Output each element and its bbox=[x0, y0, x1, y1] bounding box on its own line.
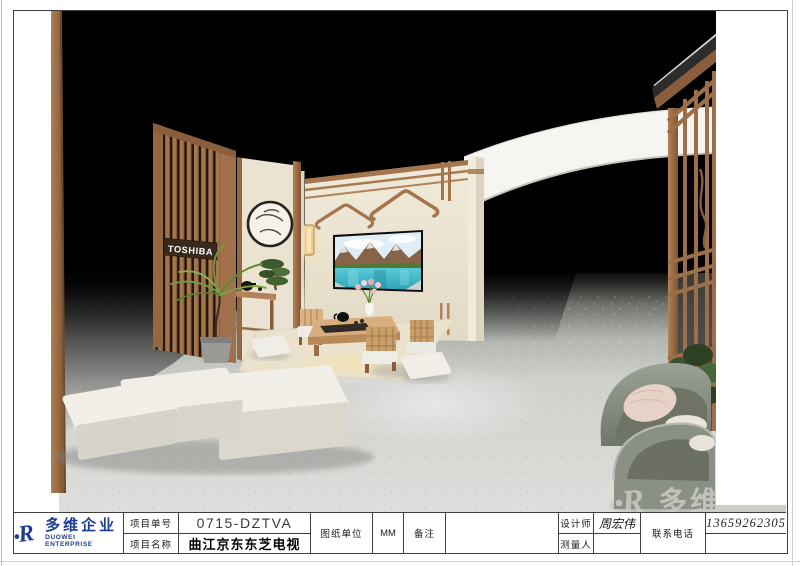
remark-label: 备注 bbox=[403, 513, 445, 553]
company-logo: R 多维企业 DUOWEI ENTERPRISE bbox=[14, 513, 123, 553]
title-block: R 多维企业 DUOWEI ENTERPRISE 项目单号 0715-DZTVA… bbox=[14, 512, 786, 552]
project-name-label: 项目名称 bbox=[123, 533, 178, 553]
right-margin-strip bbox=[716, 11, 786, 505]
designer-label: 设计师 bbox=[558, 513, 593, 533]
phone-value-row2 bbox=[705, 533, 786, 553]
company-name-en: DUOWEI ENTERPRISE bbox=[45, 535, 123, 548]
slat-screen: TOSHIBA bbox=[153, 123, 236, 363]
watermark-monogram: R bbox=[618, 482, 646, 512]
phone-value: 13659262305 bbox=[705, 513, 786, 533]
page-edge-line bbox=[0, 561, 800, 562]
sheet-frame: TOSHIBA bbox=[13, 10, 788, 554]
surveyor-value bbox=[593, 533, 640, 553]
floor-cushion-right bbox=[402, 355, 450, 383]
surveyor-label: 测量人 bbox=[558, 533, 593, 553]
unit-value: MM bbox=[372, 513, 403, 553]
round-plate-decor bbox=[248, 202, 292, 246]
logo-monogram-icon: R bbox=[14, 518, 41, 548]
bench-cushion bbox=[66, 382, 175, 457]
left-wall bbox=[14, 11, 66, 512]
drawing-sheet: TOSHIBA bbox=[0, 0, 800, 566]
booth-render: TOSHIBA bbox=[14, 11, 786, 512]
unit-label: 图纸单位 bbox=[310, 513, 372, 553]
wall-corner-pillar bbox=[468, 156, 484, 341]
phone-label: 联系电话 bbox=[640, 513, 705, 553]
remark-value bbox=[445, 513, 558, 553]
company-name-cn: 多维企业 bbox=[45, 518, 123, 533]
floor-sliver bbox=[716, 505, 786, 512]
project-no-value: 0715-DZTVA bbox=[178, 513, 310, 533]
designer-value: 周宏伟 bbox=[593, 513, 640, 533]
project-no-label: 项目单号 bbox=[123, 513, 178, 533]
floor-cushion-left bbox=[250, 338, 290, 360]
svg-text:R: R bbox=[16, 520, 36, 548]
page-edge-line bbox=[792, 0, 793, 566]
project-name-value: 曲江京东东芝电视 bbox=[178, 533, 310, 553]
page-edge-line bbox=[1, 0, 2, 566]
